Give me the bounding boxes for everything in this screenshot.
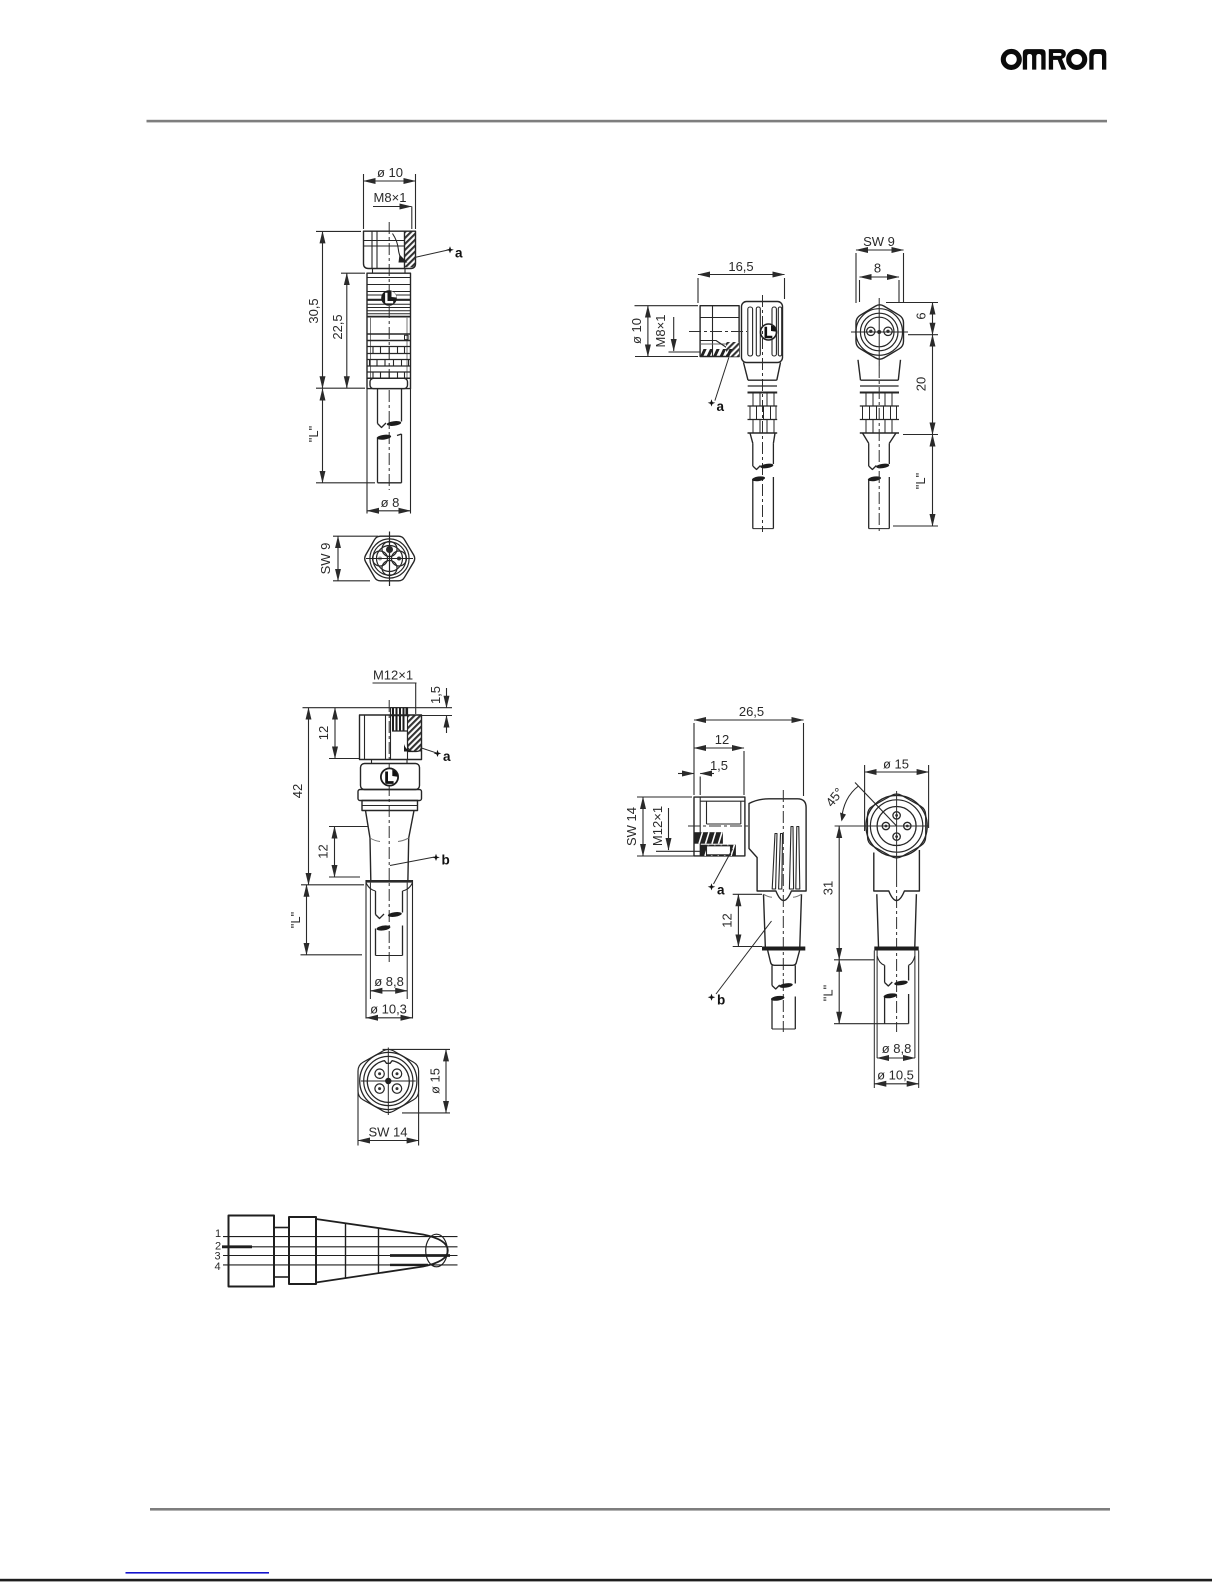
svg-text:30,5: 30,5 [306, 298, 321, 323]
svg-text:12: 12 [316, 844, 331, 858]
svg-text:SW 9: SW 9 [318, 543, 333, 575]
svg-text:4: 4 [214, 1261, 220, 1273]
svg-text:ø 15: ø 15 [428, 1068, 443, 1094]
svg-text:42: 42 [290, 784, 305, 798]
svg-text:ø 8: ø 8 [381, 495, 400, 510]
svg-text:a: a [455, 246, 463, 261]
svg-text:26,5: 26,5 [739, 704, 764, 719]
svg-text:M8×1: M8×1 [374, 190, 407, 205]
svg-text:ø 10,5: ø 10,5 [877, 1068, 914, 1083]
svg-text:a: a [717, 883, 725, 898]
svg-text:ø 15: ø 15 [883, 757, 909, 772]
svg-text:"L": "L" [288, 911, 303, 928]
svg-text:12: 12 [316, 726, 331, 740]
svg-text:ø 10: ø 10 [629, 318, 644, 344]
svg-text:20: 20 [914, 377, 929, 391]
svg-text:ø 10,3: ø 10,3 [370, 1002, 407, 1017]
svg-text:ø 8,8: ø 8,8 [882, 1041, 912, 1056]
svg-text:12: 12 [720, 913, 735, 927]
svg-text:8: 8 [874, 261, 881, 276]
svg-text:b: b [442, 853, 450, 868]
svg-text:12: 12 [715, 732, 729, 747]
svg-text:a: a [717, 399, 725, 414]
svg-text:a: a [443, 749, 451, 764]
svg-text:1: 1 [215, 1228, 221, 1240]
svg-text:6: 6 [914, 312, 929, 319]
svg-text:1,5: 1,5 [710, 758, 728, 773]
svg-text:"L": "L" [913, 472, 928, 489]
svg-text:"L": "L" [306, 425, 321, 442]
svg-text:22,5: 22,5 [330, 314, 345, 339]
svg-text:SW 14: SW 14 [624, 807, 639, 846]
svg-text:M8×1: M8×1 [653, 315, 668, 348]
svg-text:"L": "L" [821, 984, 836, 1001]
svg-text:1,5: 1,5 [428, 686, 443, 704]
svg-text:SW 9: SW 9 [863, 234, 895, 249]
svg-text:M12×1: M12×1 [373, 668, 413, 683]
svg-text:ø 10: ø 10 [377, 165, 403, 180]
svg-text:M12×1: M12×1 [650, 806, 665, 846]
svg-text:31: 31 [821, 881, 836, 895]
svg-text:SW 14: SW 14 [368, 1125, 407, 1140]
svg-text:16,5: 16,5 [728, 259, 753, 274]
svg-text:b: b [717, 993, 725, 1008]
svg-text:ø 8,8: ø 8,8 [374, 974, 404, 989]
